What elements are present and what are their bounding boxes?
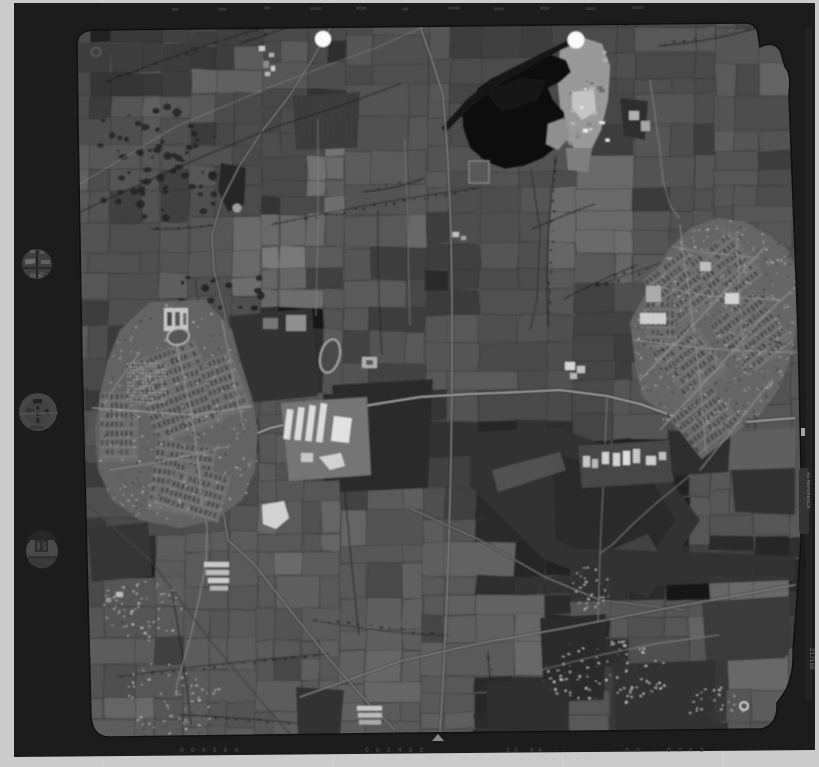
svg-text:002452: 002452 xyxy=(365,747,430,754)
svg-text:0043: 0043 xyxy=(667,747,711,754)
svg-text:AD REFERENCE: AD REFERENCE xyxy=(806,472,811,509)
svg-text:13 04 --: 13 04 -- xyxy=(506,747,569,754)
svg-text:000000: 000000 xyxy=(180,747,245,754)
svg-text:80: 80 xyxy=(625,747,647,754)
svg-text:217160: 217160 xyxy=(808,648,815,670)
